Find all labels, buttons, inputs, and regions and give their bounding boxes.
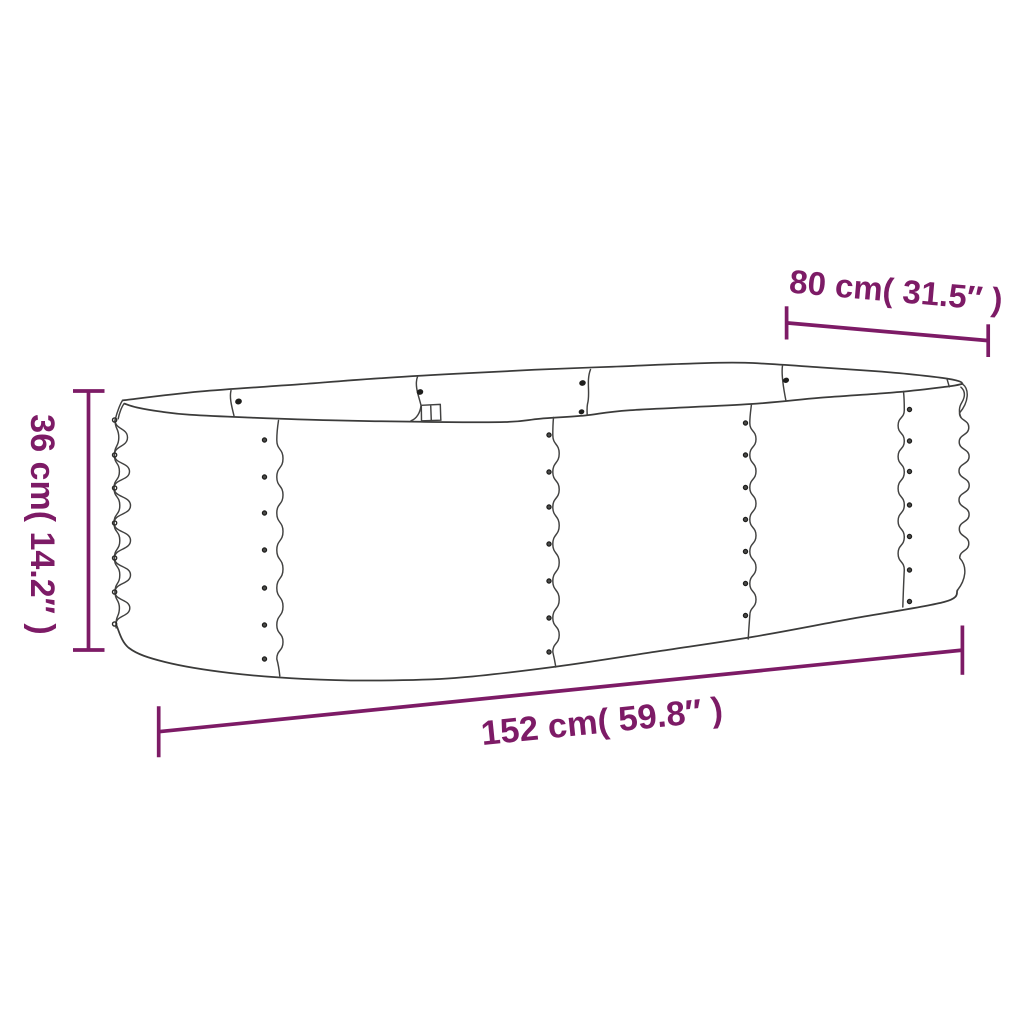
svg-text:152 cm( 59.8″ ): 152 cm( 59.8″ ): [479, 691, 724, 753]
svg-text:36 cm( 14.2″ ): 36 cm( 14.2″ ): [23, 414, 61, 634]
svg-text:80 cm( 31.5″ ): 80 cm( 31.5″ ): [788, 263, 1004, 319]
